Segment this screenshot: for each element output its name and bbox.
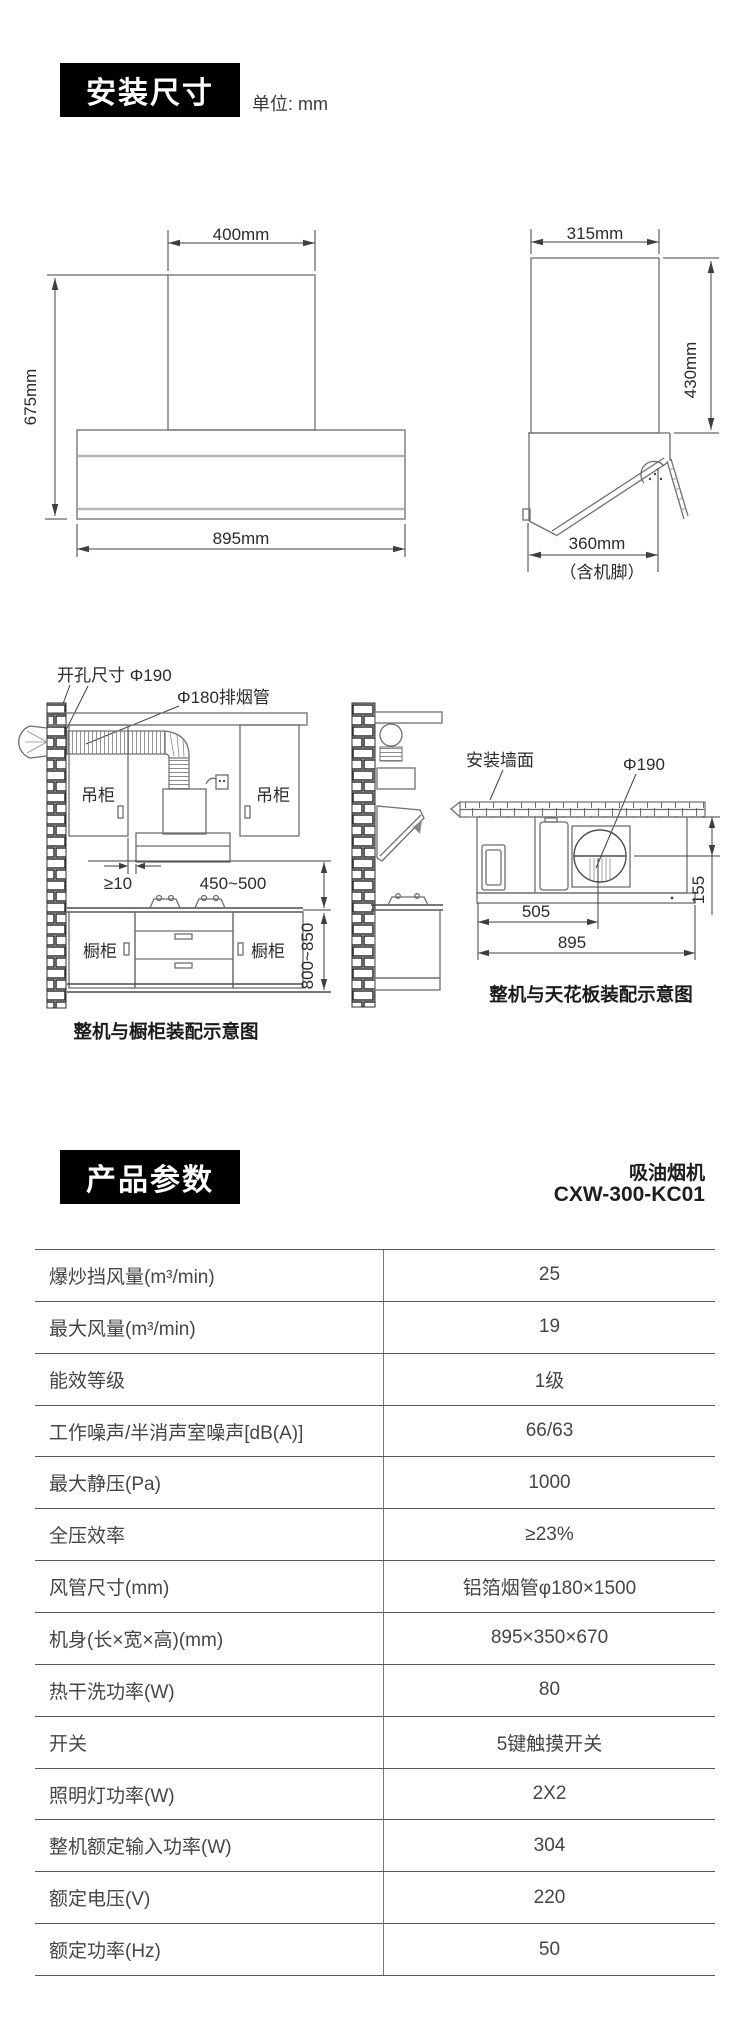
hanging-cabinet-right-label: 吊柜 xyxy=(256,786,290,805)
gap-dim: ≥10 xyxy=(104,874,132,893)
ceiling-assembly-diagram: 安装墙面 Φ190 505 xyxy=(352,703,720,1007)
spec-row: 最大静压(Pa)1000 xyxy=(35,1457,715,1509)
base-cabinet-left-label: 橱柜 xyxy=(83,942,117,961)
spec-row: 整机额定输入功率(W)304 xyxy=(35,1820,715,1872)
spec-value: 1级 xyxy=(383,1354,715,1405)
side-height-dim: 430mm xyxy=(681,342,700,399)
side-view-drawing: 315mm 430mm 360mm （含机脚） xyxy=(523,224,719,582)
front-height-dim: 675mm xyxy=(21,369,40,426)
page: 安装尺寸 单位: mm xyxy=(0,0,750,2036)
wall-label: 安装墙面 xyxy=(466,751,534,770)
spec-value: 1000 xyxy=(383,1457,715,1508)
spec-label: 额定功率(Hz) xyxy=(35,1936,383,1963)
depth-dim-155: 155 xyxy=(689,876,708,904)
spec-row: 最大风量(m³/min)19 xyxy=(35,1302,715,1354)
ceiling-diagram-caption: 整机与天花板装配示意图 xyxy=(489,984,693,1005)
spec-label: 额定电压(V) xyxy=(35,1884,383,1911)
spec-row: 额定电压(V)220 xyxy=(35,1872,715,1924)
spec-label: 爆炒挡风量(m³/min) xyxy=(35,1262,383,1289)
hood-height-range-dim: 450~500 xyxy=(200,874,267,893)
spec-value: 2X2 xyxy=(383,1769,715,1820)
ceiling-hole-dim: Φ190 xyxy=(623,755,665,774)
fan-offset-dim: 505 xyxy=(522,902,550,921)
spec-row: 全压效率≥23% xyxy=(35,1509,715,1561)
side-width-top-dim: 315mm xyxy=(567,224,624,243)
counter-height-dim: 800~850 xyxy=(298,923,317,990)
spec-value: 5键触摸开关 xyxy=(383,1717,715,1768)
hole-size-label: 开孔尺寸 Φ190 xyxy=(57,666,172,685)
spec-value: 895×350×670 xyxy=(383,1613,715,1664)
product-model: CXW-300-KC01 xyxy=(554,1183,705,1207)
front-view-drawing: 400mm 675mm 895mm xyxy=(21,225,405,557)
spec-label: 照明灯功率(W) xyxy=(35,1781,383,1808)
spec-value: 铝箔烟管φ180×1500 xyxy=(383,1561,715,1612)
hanging-cabinet-left-label: 吊柜 xyxy=(81,786,115,805)
spec-row: 机身(长×宽×高)(mm)895×350×670 xyxy=(35,1613,715,1665)
spec-value: 220 xyxy=(383,1872,715,1923)
side-depth-dim: 360mm xyxy=(569,534,626,553)
spec-label: 全压效率 xyxy=(35,1521,383,1548)
spec-row: 能效等级1级 xyxy=(35,1354,715,1406)
side-depth-note: （含机脚） xyxy=(560,563,645,582)
spec-label: 开关 xyxy=(35,1729,383,1756)
installation-drawings: 400mm 675mm 895mm xyxy=(0,0,750,1100)
params-section-badge: 产品参数 xyxy=(60,1150,240,1204)
spec-value: 50 xyxy=(383,1924,715,1975)
plan-width-dim: 895 xyxy=(558,933,586,952)
spec-row: 工作噪声/半消声室噪声[dB(A)]66/63 xyxy=(35,1406,715,1458)
pipe-label: Φ180排烟管 xyxy=(177,688,270,707)
spec-value: 80 xyxy=(383,1665,715,1716)
spec-value: 19 xyxy=(383,1302,715,1353)
spec-table: 爆炒挡风量(m³/min)25 最大风量(m³/min)19 能效等级1级 工作… xyxy=(35,1249,715,1976)
base-cabinet-right-label: 橱柜 xyxy=(251,942,285,961)
spec-label: 最大风量(m³/min) xyxy=(35,1314,383,1341)
front-width-top-dim: 400mm xyxy=(213,225,270,244)
spec-value: ≥23% xyxy=(383,1509,715,1560)
spec-value: 25 xyxy=(383,1250,715,1301)
spec-row: 热干洗功率(W)80 xyxy=(35,1665,715,1717)
product-type: 吸油烟机 xyxy=(629,1158,705,1185)
spec-label: 工作噪声/半消声室噪声[dB(A)] xyxy=(35,1418,383,1445)
spec-label: 最大静压(Pa) xyxy=(35,1469,383,1496)
cabinet-assembly-diagram: 开孔尺寸 Φ190 Φ180排烟管 吊柜 吊柜 xyxy=(19,666,331,1042)
spec-row: 额定功率(Hz)50 xyxy=(35,1924,715,1976)
spec-value: 66/63 xyxy=(383,1406,715,1457)
spec-label: 整机额定输入功率(W) xyxy=(35,1832,383,1859)
spec-label: 机身(长×宽×高)(mm) xyxy=(35,1625,383,1652)
cabinet-diagram-caption: 整机与橱柜装配示意图 xyxy=(73,1021,258,1042)
spec-label: 能效等级 xyxy=(35,1366,383,1393)
spec-label: 风管尺寸(mm) xyxy=(35,1573,383,1600)
spec-row: 风管尺寸(mm)铝箔烟管φ180×1500 xyxy=(35,1561,715,1613)
front-width-bottom-dim: 895mm xyxy=(213,529,270,548)
spec-row: 照明灯功率(W)2X2 xyxy=(35,1769,715,1821)
spec-value: 304 xyxy=(383,1820,715,1871)
spec-label: 热干洗功率(W) xyxy=(35,1677,383,1704)
spec-row: 爆炒挡风量(m³/min)25 xyxy=(35,1250,715,1302)
spec-row: 开关5键触摸开关 xyxy=(35,1717,715,1769)
